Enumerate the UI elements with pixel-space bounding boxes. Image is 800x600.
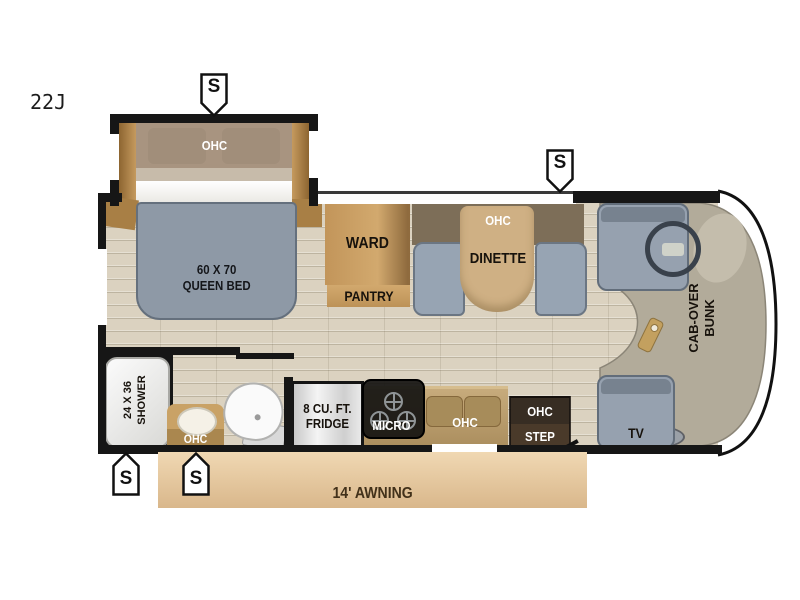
bracket-bolt: [649, 323, 660, 334]
speaker-letter: S: [199, 76, 229, 98]
vanity-ohc-label: OHC: [170, 432, 220, 446]
speaker-letter: S: [181, 468, 211, 490]
pocket-door: [236, 353, 294, 359]
speaker-marker: S: [181, 451, 211, 497]
fridge-label: 8 CU. FT. FRIDGE: [303, 402, 351, 432]
dinette-label: DINETTE: [445, 250, 551, 267]
fridge-wall: [284, 377, 293, 448]
tv-label: TV: [603, 425, 668, 441]
driver-seat-back: [601, 207, 685, 222]
slideout-window-left: [110, 134, 119, 180]
shower-label: 24 X 36 SHOWER: [116, 360, 156, 440]
queen-bed: 60 X 70 QUEEN BED: [136, 202, 297, 320]
bed-headboard-strip: [136, 168, 292, 181]
sink-ohc-label: OHC: [439, 415, 492, 430]
awning: 14' AWNING: [158, 452, 587, 508]
bedroom-overhead-cabinet: OHC: [136, 123, 292, 168]
bed-sheets: [136, 181, 292, 204]
entry-step-cabinet: OHC STEP: [509, 396, 571, 452]
slideout-cabinet-right: [292, 123, 309, 205]
ward-label: WARD: [346, 235, 389, 253]
wardrobe-cabinet: WARD: [325, 203, 410, 285]
passenger-seat: TV: [597, 375, 675, 449]
pillow: [222, 128, 280, 164]
slideout-window-right: [309, 131, 318, 178]
pantry-label: PANTRY: [344, 288, 393, 304]
window-left: [96, 249, 107, 325]
awning-label: 14' AWNING: [332, 485, 412, 508]
speaker-letter: S: [545, 152, 575, 174]
window-top: [310, 194, 576, 204]
model-label: 22J: [30, 90, 66, 114]
steering-wheel-hub: [662, 243, 684, 256]
speaker-marker: S: [545, 148, 575, 194]
speaker-marker: S: [199, 72, 229, 118]
toilet: [218, 378, 294, 452]
wall-top-right: [573, 191, 720, 203]
microwave-label: MICRO: [366, 418, 418, 433]
cab-over-bunk-label: CAB-OVER BUNK: [680, 268, 724, 368]
queen-bed-label: 60 X 70 QUEEN BED: [182, 262, 250, 293]
passenger-seat-back: [601, 379, 671, 394]
bedroom-ohc-label: OHC: [201, 138, 226, 153]
speaker-marker: S: [111, 451, 141, 497]
dinette-ohc-label: OHC: [454, 213, 542, 228]
floorplan-canvas: 22J TV CAB-OVER BUNK OHC 60 X 70 QUEEN B…: [0, 0, 800, 600]
bathroom-vanity: OHC: [167, 404, 224, 447]
pantry-cabinet: PANTRY: [327, 285, 410, 307]
speaker-letter: S: [111, 468, 141, 490]
refrigerator: 8 CU. FT. FRIDGE: [291, 381, 364, 452]
pillow: [148, 128, 206, 164]
bathroom-wall: [100, 347, 240, 355]
burner-icon: [384, 392, 403, 411]
